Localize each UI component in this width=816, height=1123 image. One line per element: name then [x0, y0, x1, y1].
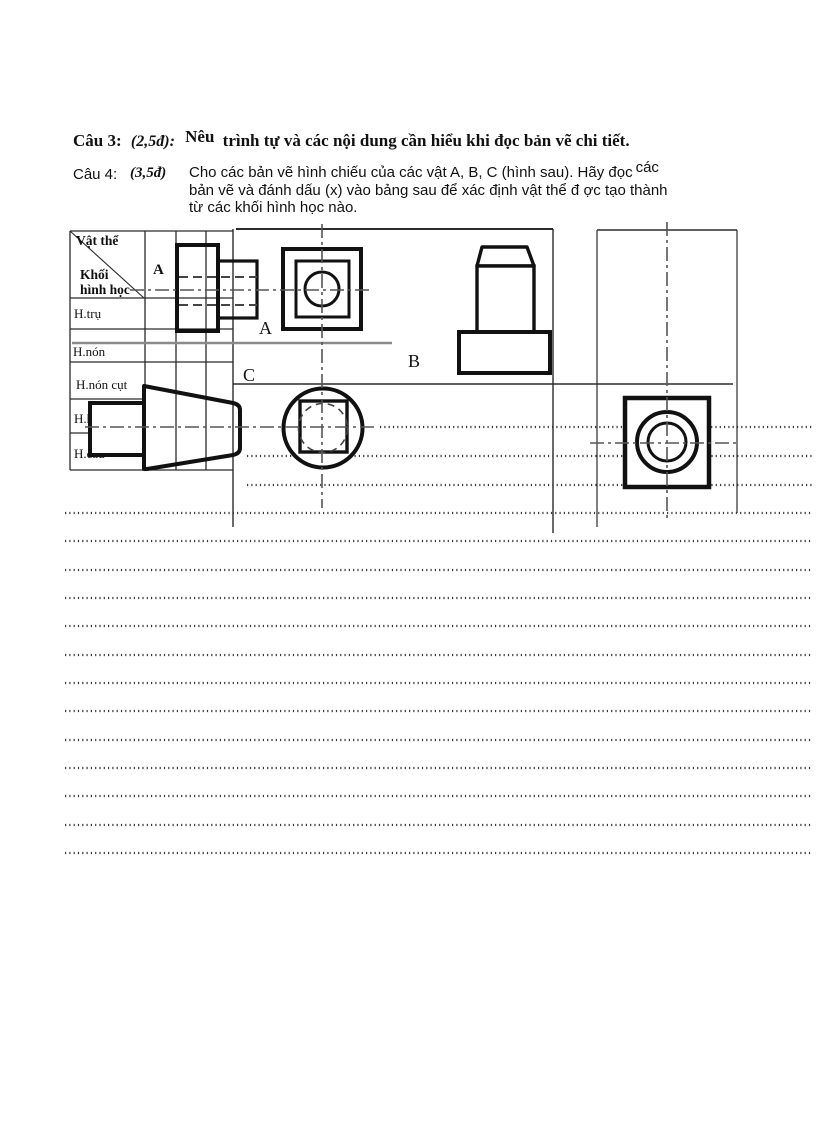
table-row-label-cone: H.nón [73, 344, 106, 359]
table-row-label-cylinder: H.trụ [74, 306, 102, 321]
object-b-chamfered-cap [477, 247, 534, 266]
figure-label-a: A [259, 318, 272, 338]
table-corner-label-solid-1: Khối [80, 267, 109, 282]
figure-label-b: B [408, 351, 420, 371]
object-b-base [459, 332, 550, 373]
dotted-answer-lines [65, 427, 812, 853]
figure-canvas: Vật thể Khối hình học A H.trụ H.nón H.nó… [0, 0, 816, 1123]
object-a-side-large-cylinder [177, 245, 218, 331]
object-c-side-cylinder [90, 403, 144, 455]
table-corner-label-object: Vật thể [76, 233, 119, 248]
table-row-label-truncated-cone: H.nón cụt [76, 377, 128, 392]
table-corner-label-solid-2: hình học [80, 282, 130, 297]
figure-label-c: C [243, 365, 255, 385]
exam-page: Câu 3: (2,5đ): Nêu trình tự và các nội d… [0, 0, 816, 1123]
table-column-header-a: A [153, 262, 164, 278]
object-b-block [477, 266, 534, 332]
